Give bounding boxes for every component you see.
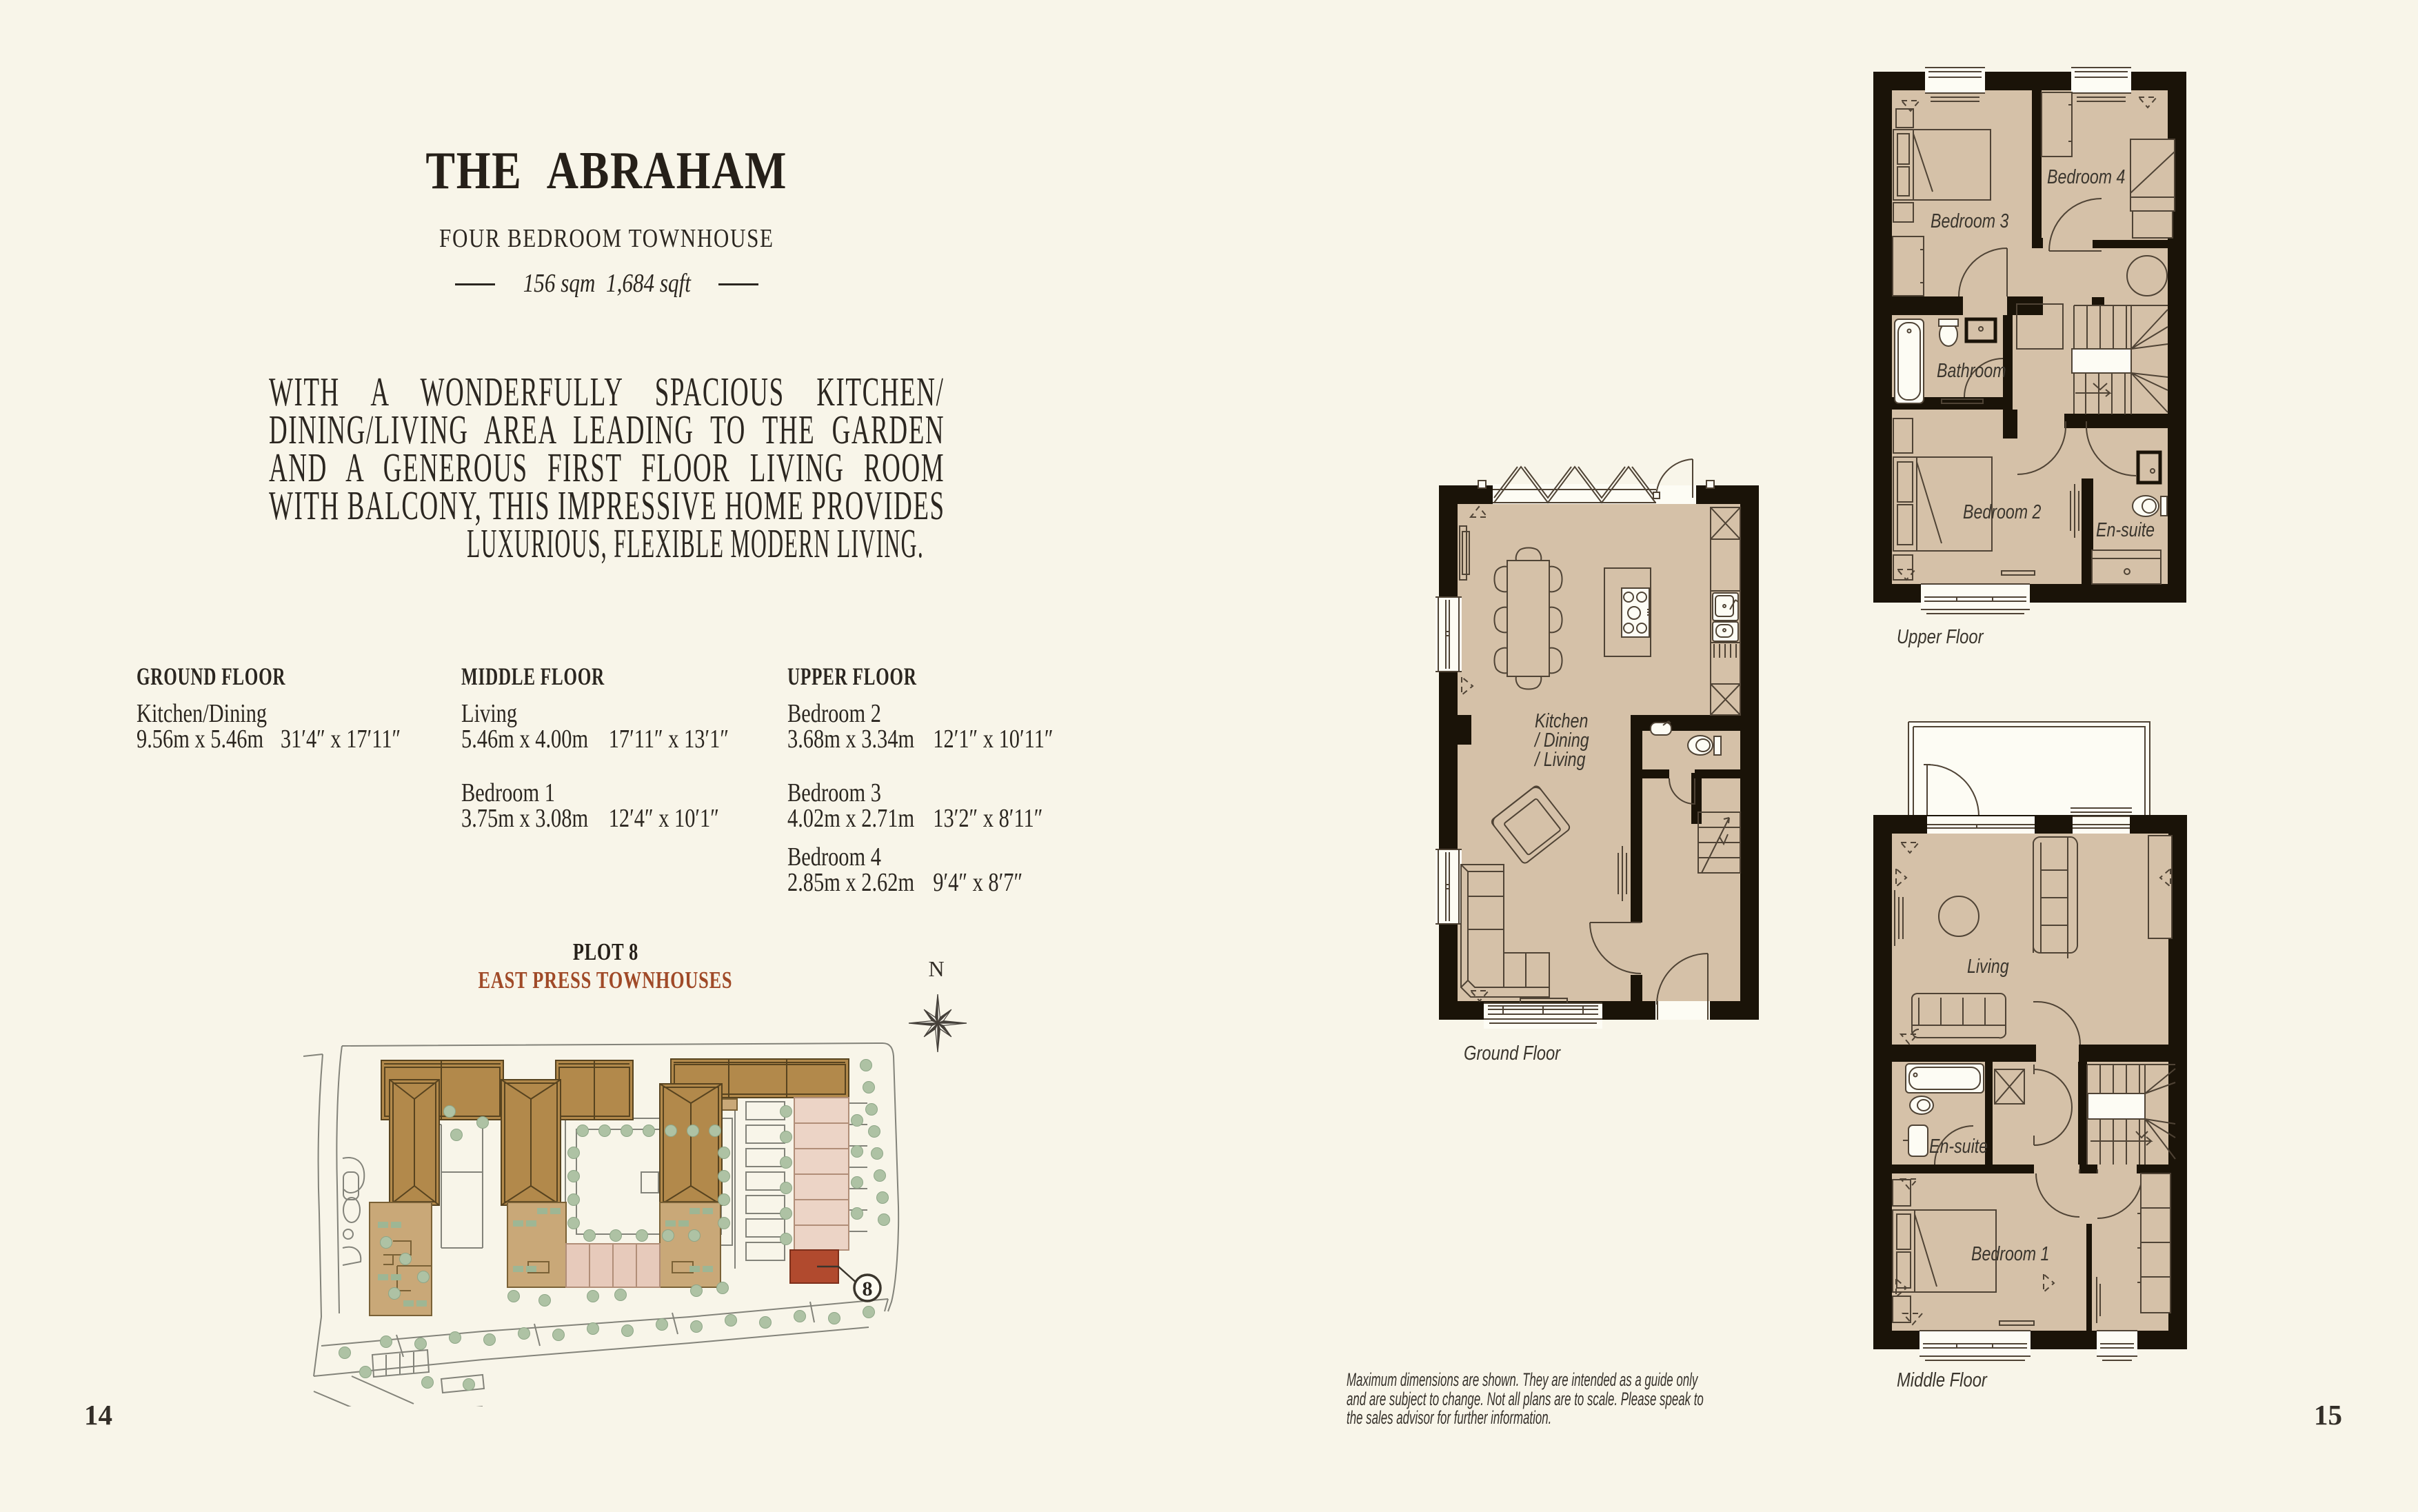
- svg-text:Bathroom: Bathroom: [1937, 359, 2006, 381]
- svg-text:N: N: [928, 956, 944, 981]
- svg-text:Bedroom 1: Bedroom 1: [1971, 1242, 2049, 1264]
- svg-text:Bedroom 2: Bedroom 2: [1963, 500, 2042, 523]
- svg-text:/ Living: / Living: [1533, 747, 1586, 770]
- svg-text:Bedroom 3: Bedroom 3: [1931, 209, 2009, 232]
- svg-text:Bedroom 4: Bedroom 4: [2047, 165, 2125, 188]
- svg-text:En-suite: En-suite: [2096, 518, 2155, 541]
- svg-text:8: 8: [863, 1278, 873, 1300]
- svg-text:En-suite: En-suite: [1929, 1134, 1988, 1157]
- svg-text:Living: Living: [1967, 954, 2009, 977]
